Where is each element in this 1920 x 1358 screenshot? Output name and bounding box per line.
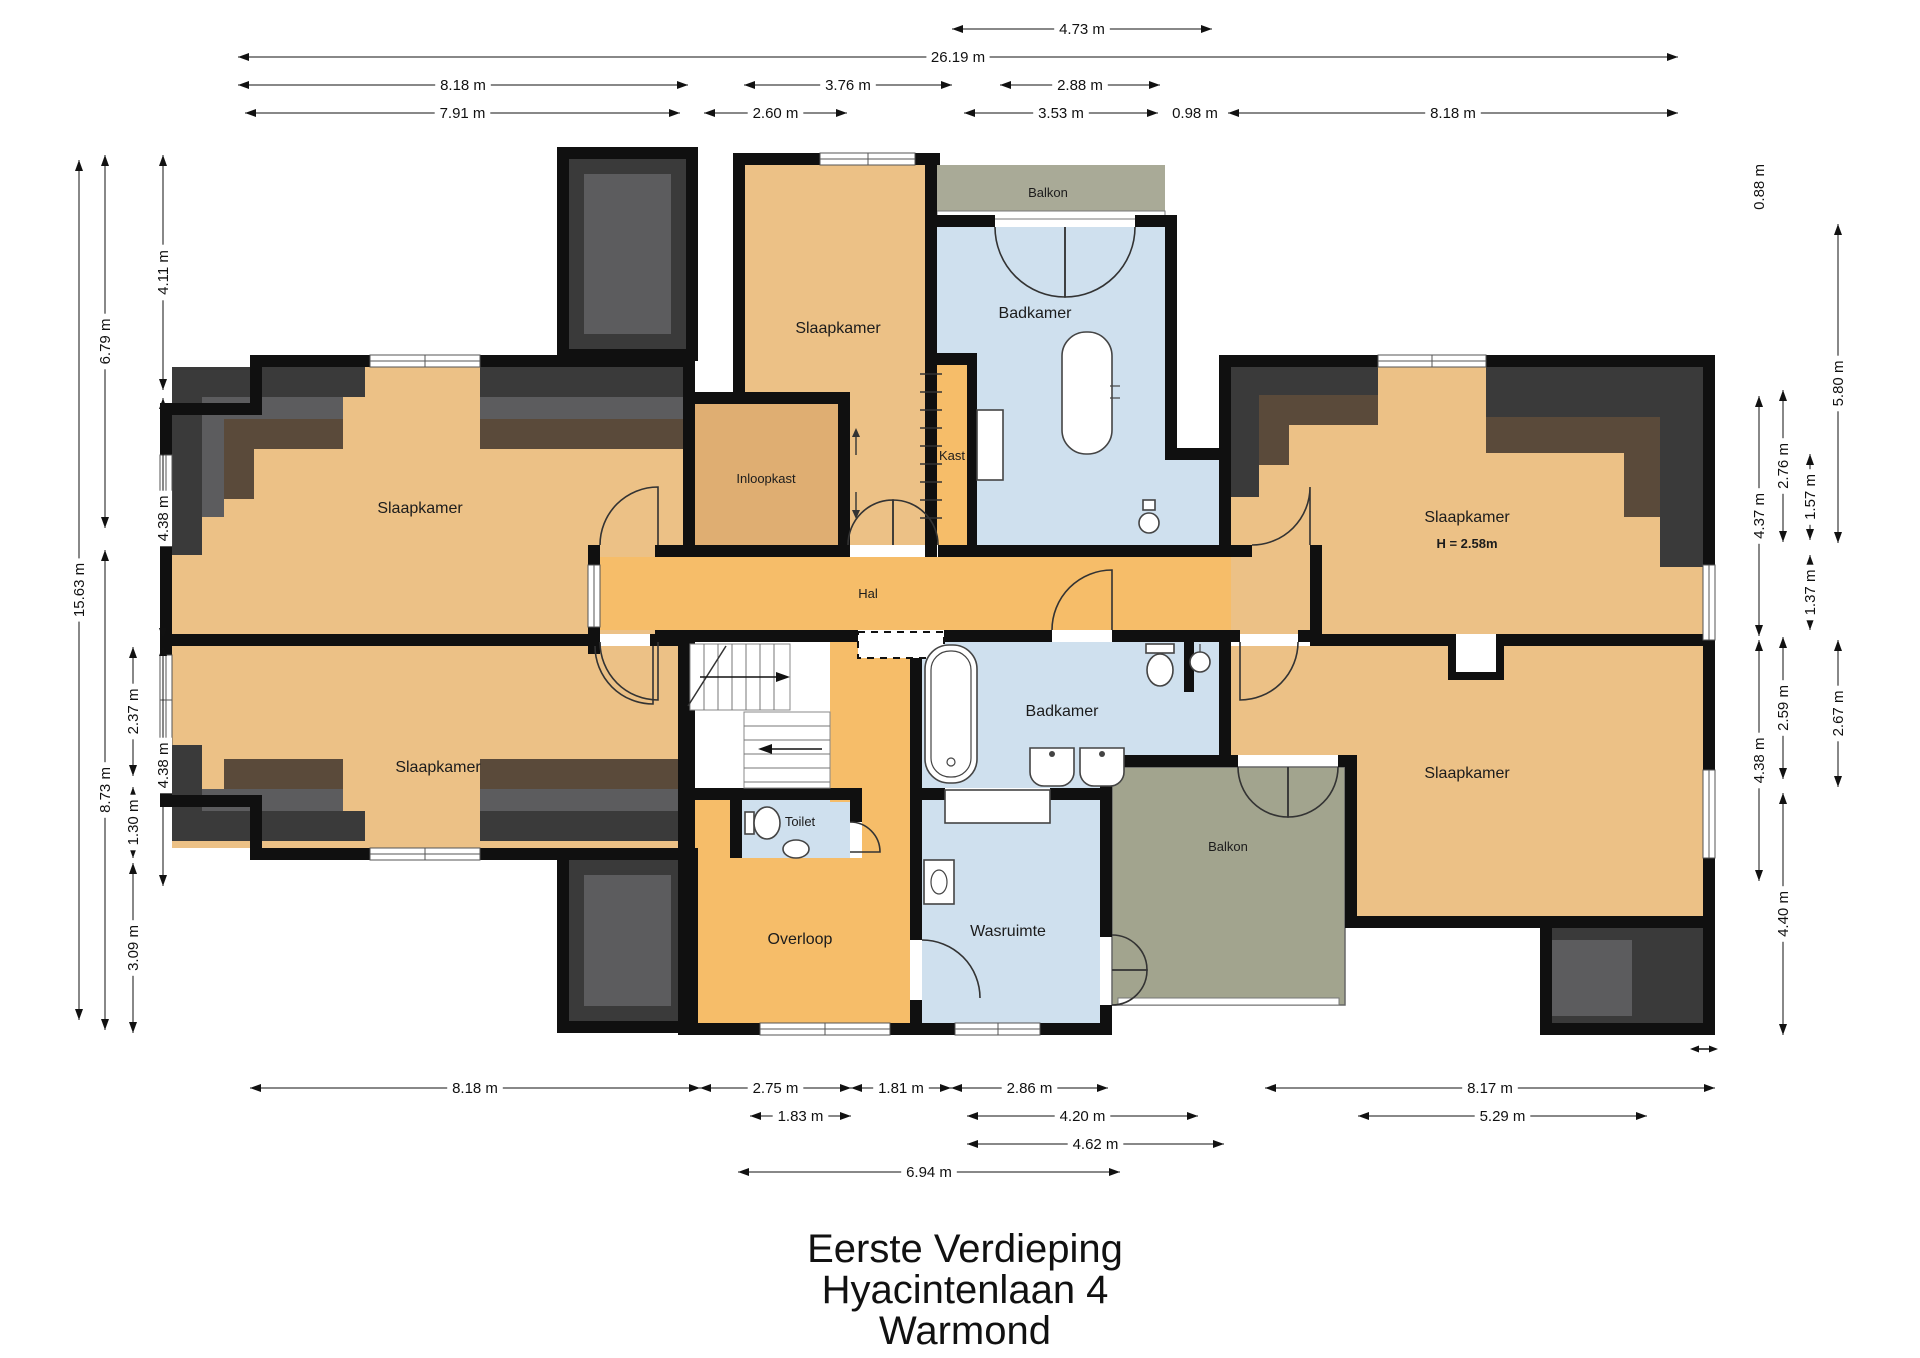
dimension: 5.80 m [1829,224,1847,543]
label-balkon-bottom: Balkon [1208,839,1248,854]
dimension: 4.38 m [1750,640,1768,881]
dimension: 2.76 m [1774,390,1792,542]
window [160,655,172,745]
sink-icon [924,860,954,904]
dimension-label: 5.80 m [1830,361,1847,407]
wall-niche [1456,634,1496,672]
dimension: 4.62 m [967,1135,1224,1153]
dimension: 2.67 m [1829,640,1847,787]
toilet-icon [1147,654,1173,686]
dimension: 2.75 m [700,1079,851,1097]
dimension-label: 2.60 m [753,105,799,122]
label-hal: Hal [858,586,878,601]
dimension: 1.30 m [124,787,142,858]
roof-band-brown [480,759,683,789]
dimension: 1.83 m [750,1107,851,1125]
roof-band [480,811,683,841]
window [1703,770,1715,858]
dimension-label: 5.29 m [1480,1108,1526,1125]
label-balkon-top: Balkon [1028,185,1068,200]
dimension: 4.40 m [1774,793,1792,1035]
label-slaapkamer-top-center: Slaapkamer [795,320,881,337]
dimension-label: 3.53 m [1038,105,1084,122]
sink-icon [1190,652,1210,672]
dimension-label: 6.79 m [97,319,114,365]
dimension-label: 6.94 m [906,1164,952,1181]
dimension: 15.63 m [70,160,88,1020]
dimension-label: 2.37 m [125,689,142,735]
roof-band [480,367,683,397]
dimension: 1.57 m [1801,454,1819,540]
dimension-label: 4.62 m [1073,1136,1119,1153]
dimension: 8.18 m [250,1079,700,1097]
dimension-label: 2.75 m [753,1080,799,1097]
window [370,355,480,367]
roof-band [172,367,365,397]
roof-band [1231,367,1378,395]
dimension: 4.73 m [952,20,1212,38]
dimension: 2.88 m [1000,76,1160,94]
dimension-label: 2.86 m [1007,1080,1053,1097]
room-hal [600,557,1310,630]
label-slaapkamer-top-left: Slaapkamer [377,500,463,517]
se-block-inner [1552,940,1632,1016]
label-overloop: Overloop [768,931,833,948]
dimension-label: 8.18 m [1430,105,1476,122]
dimension-label: 4.38 m [155,496,172,542]
dimension-label: 1.81 m [878,1080,924,1097]
toilet-icon [754,807,780,839]
dimension-label: 4.38 m [155,743,172,789]
dimension-label: 4.38 m [1751,738,1768,784]
window [1703,565,1715,640]
lower-shoulder-inner [584,875,671,1006]
dimension: 8.73 m [96,550,114,1030]
dimension-label: 8.18 m [452,1080,498,1097]
sink-icon [783,840,809,858]
plan-title-line3: Warmond [879,1309,1051,1353]
dimension-label: 2.88 m [1057,77,1103,94]
label-badkamer-mid: Badkamer [1026,703,1100,720]
label-slaapkamer-top-right: Slaapkamer [1424,509,1510,526]
window [370,848,480,860]
dimension: 0.88 m [1750,159,1768,215]
toilet-icon [1139,513,1159,533]
roof-band-brown [224,759,343,789]
dimension-label: 4.11 m [155,250,172,295]
dimension: 6.79 m [96,155,114,528]
plan-title-line1: Eerste Verdieping [807,1227,1123,1271]
dimension-label: 15.63 m [71,563,88,617]
dimension: 4.20 m [967,1107,1198,1125]
label-badkamer-top: Badkamer [999,305,1073,322]
window [955,1023,1040,1035]
label-kast: Kast [939,448,965,463]
double-arrow-icon [1690,1046,1718,1053]
toilet-icon [1143,500,1155,510]
room-wasruimte [922,800,1100,1023]
room-overloop-strip [830,642,910,802]
label-slaapkamer-tr-height: H = 2.58m [1436,536,1497,551]
dimension: 2.86 m [951,1079,1108,1097]
dimension: 4.37 m [1750,396,1768,636]
dimension: 3.76 m [744,76,952,94]
sink-icon [977,410,1003,480]
dimension-label: 0.88 m [1751,164,1768,210]
dimension-label: 8.18 m [440,77,486,94]
window [760,1023,890,1035]
balkon-bottom-railing [1118,998,1339,1005]
roof-band-brown [480,419,683,449]
dimension: 26.19 m [238,48,1678,66]
dimension-label: 4.20 m [1060,1108,1106,1125]
window [588,565,600,627]
dimension: 8.18 m [238,76,688,94]
plan-title-line2: Hyacintenlaan 4 [822,1268,1109,1312]
dimension-label: 4.73 m [1059,21,1105,38]
dimension: 8.17 m [1265,1079,1715,1097]
dimension: 2.37 m [124,647,142,776]
dimension: 6.94 m [738,1163,1120,1181]
dimension-label: 26.19 m [931,49,985,66]
dimension: 4.11 m [154,155,172,390]
toilet-icon [1146,644,1174,653]
dimension-label: 3.09 m [125,925,142,971]
roof-band-brown [1259,395,1289,465]
dimension: 7.91 m [245,104,680,122]
dimension: 8.18 m [1228,104,1678,122]
dimension: 2.60 m [704,104,847,122]
dimension-label: 3.76 m [825,77,871,94]
dimension-label: 1.57 m [1802,474,1819,520]
plan-title: Eerste Verdieping Hyacintenlaan 4 Warmon… [807,1227,1123,1353]
dimension-label: 2.67 m [1830,691,1847,737]
label-slaapkamer-bottom-left: Slaapkamer [395,759,481,776]
window [820,153,915,165]
floorplan-page: Slaapkamer Slaapkamer Slaapkamer Inloopk… [0,0,1920,1358]
dimension-label: 8.17 m [1467,1080,1513,1097]
counter [945,790,1050,823]
dimension-label: 2.76 m [1775,443,1792,489]
roof-band-brown [1486,417,1636,453]
dimension: 1.81 m [851,1079,951,1097]
dimension: 2.59 m [1774,637,1792,779]
dimension: 3.53 m [964,104,1158,122]
dimension-label: 4.37 m [1751,493,1768,539]
dimension: 1.37 m [1801,555,1819,630]
bathtub-icon [925,645,977,783]
roof-band-brown [224,419,343,449]
roof-band-mid [480,397,683,419]
floorplan-drawing: Slaapkamer Slaapkamer Slaapkamer Inloopk… [0,0,1920,1358]
dimension-label: 8.73 m [97,767,114,813]
dimension-label: 7.91 m [440,105,486,122]
dimension: 5.29 m [1358,1107,1647,1125]
roof-band-brown [1624,417,1660,517]
dimension: 3.09 m [124,863,142,1033]
dimension-label: 1.30 m [125,800,142,846]
dimension-label: 2.59 m [1775,685,1792,731]
label-slaapkamer-bottom-right: Slaapkamer [1424,765,1510,782]
dimension: 0.98 m [1167,104,1223,122]
label-toilet: Toilet [785,814,816,829]
bathtub-icon [1062,332,1112,454]
dimension-label: 4.40 m [1775,891,1792,937]
staircase [688,644,830,788]
dimension-label: 1.83 m [778,1108,824,1125]
roof-band-mid [480,789,683,811]
roof-band [172,811,365,841]
window [1378,355,1486,367]
label-wasruimte: Wasruimte [970,923,1046,940]
toilet-icon [745,812,754,834]
dormer-shoulder-inner [584,174,671,334]
dimension-label: 0.98 m [1172,105,1218,122]
label-inloopkast: Inloopkast [736,471,796,486]
roof-band [1660,367,1703,567]
dimension-label: 1.37 m [1802,570,1819,616]
